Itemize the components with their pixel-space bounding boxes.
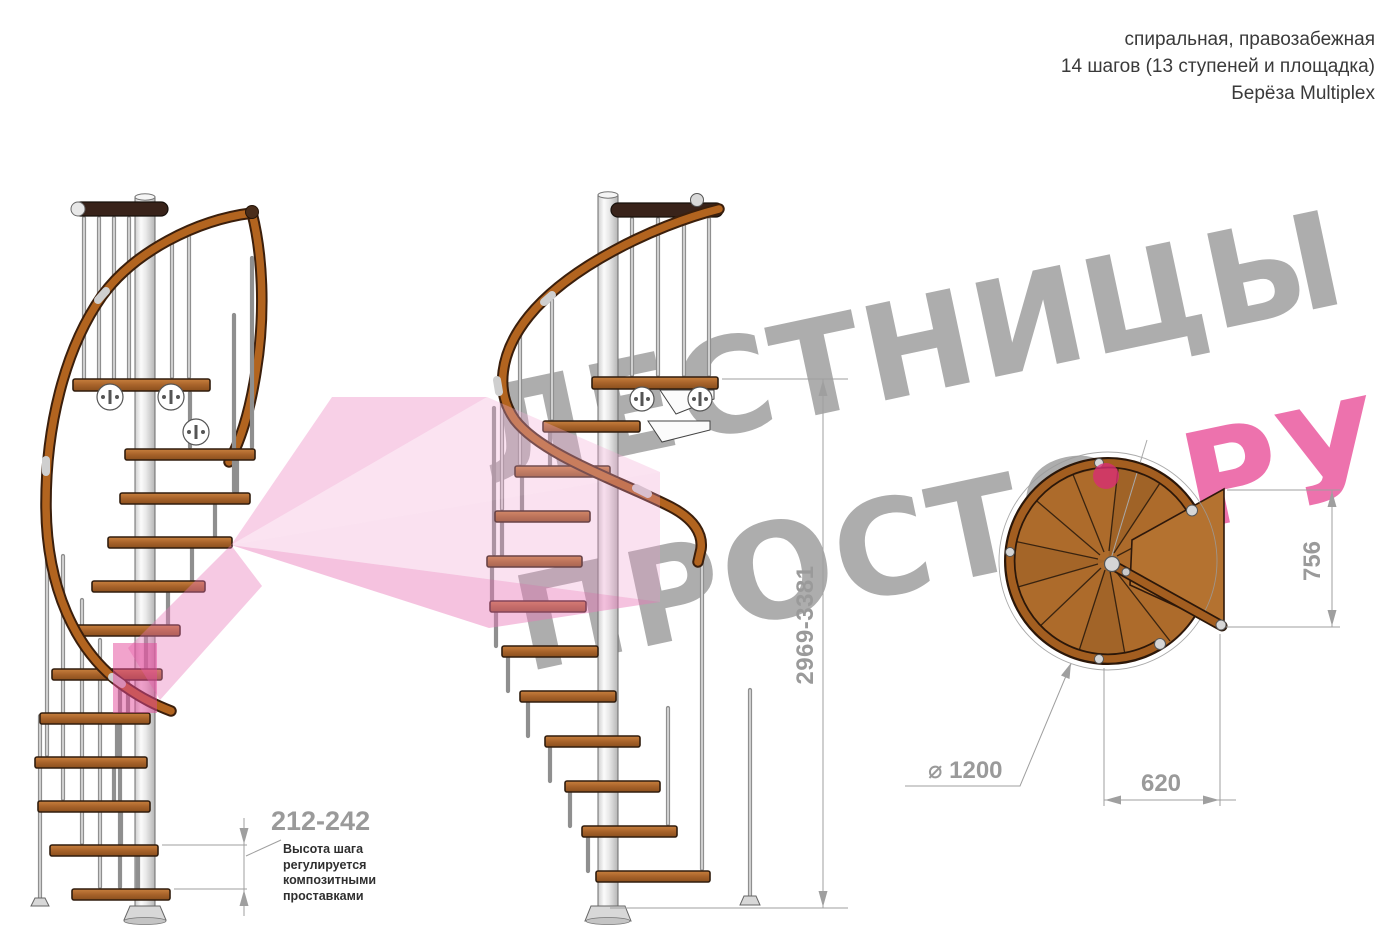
plan-center-pole	[1105, 557, 1120, 572]
dimension-label-plan-depth: 756	[1299, 521, 1327, 601]
platform-handrail	[74, 202, 168, 216]
watermark-dot	[1093, 463, 1119, 489]
technical-drawing-canvas	[0, 0, 1400, 942]
drawing-title-block: спиральная, правозабежная 14 шагов (13 с…	[1061, 26, 1375, 107]
dimension-label-total-height: 2969-3381	[792, 545, 820, 705]
step-bracket	[648, 421, 710, 442]
dimension-label-diameter: ⌀ 1200	[928, 756, 1003, 785]
platform-tread	[73, 379, 210, 391]
title-line-material: Берёза Multiplex	[1061, 80, 1375, 107]
dimension-step-height	[162, 818, 281, 916]
step-height-note: Высота шага регулируется композитными пр…	[283, 842, 376, 904]
dimension-label-step-height: 212-242	[271, 806, 370, 837]
title-line-steps: 14 шагов (13 ступеней и площадка)	[1061, 53, 1375, 80]
title-line-type: спиральная, правозабежная	[1061, 26, 1375, 53]
center-pole	[135, 197, 155, 922]
dimension-label-plan-width: 620	[1111, 770, 1211, 798]
technical-drawing-page: { "header": { "line1": "спиральная, прав…	[0, 0, 1400, 942]
